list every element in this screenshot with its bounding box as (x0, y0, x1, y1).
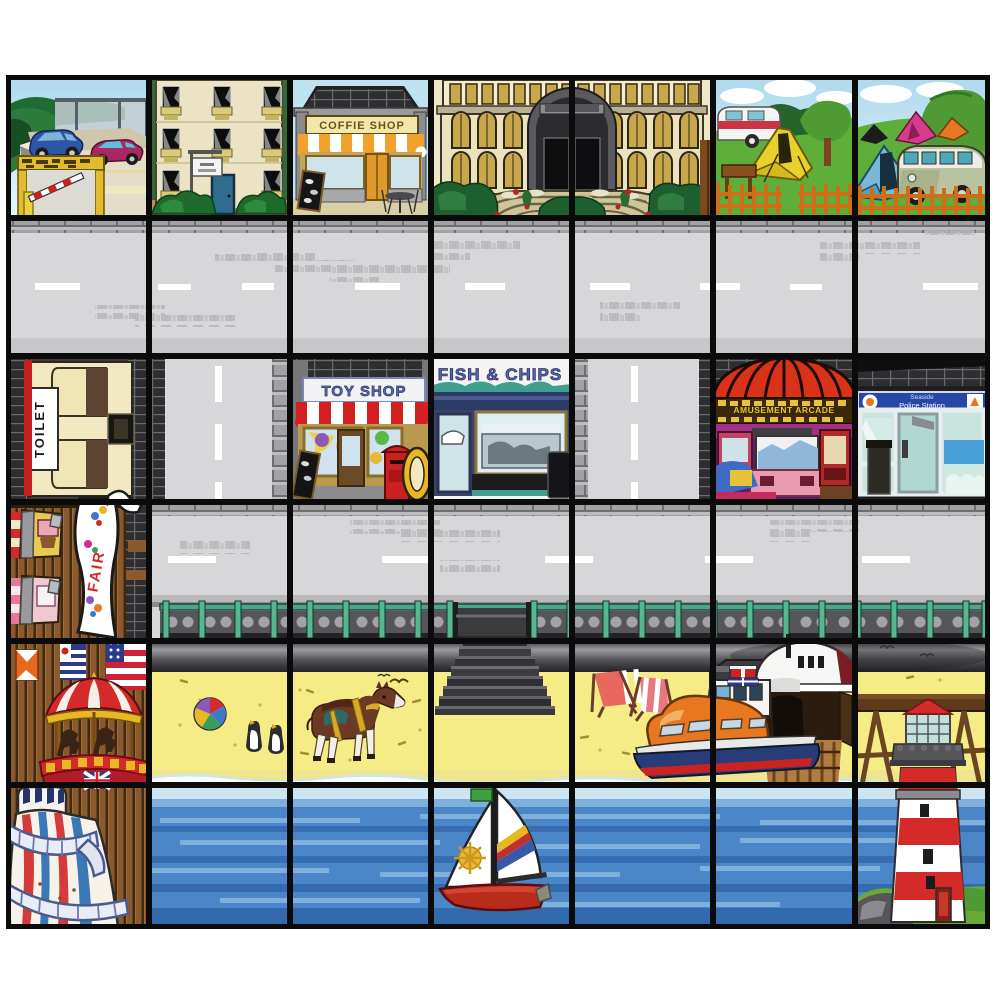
svg-text:TOILET: TOILET (32, 400, 47, 458)
svg-text:FISH & CHIPS: FISH & CHIPS (438, 365, 562, 384)
svg-text:AMUSEMENT ARCADE: AMUSEMENT ARCADE (733, 405, 834, 415)
svg-text:TOY SHOP: TOY SHOP (322, 383, 407, 400)
svg-text:COFFIE SHOP: COFFIE SHOP (319, 120, 405, 132)
svg-text:Seaside: Seaside (910, 394, 934, 401)
